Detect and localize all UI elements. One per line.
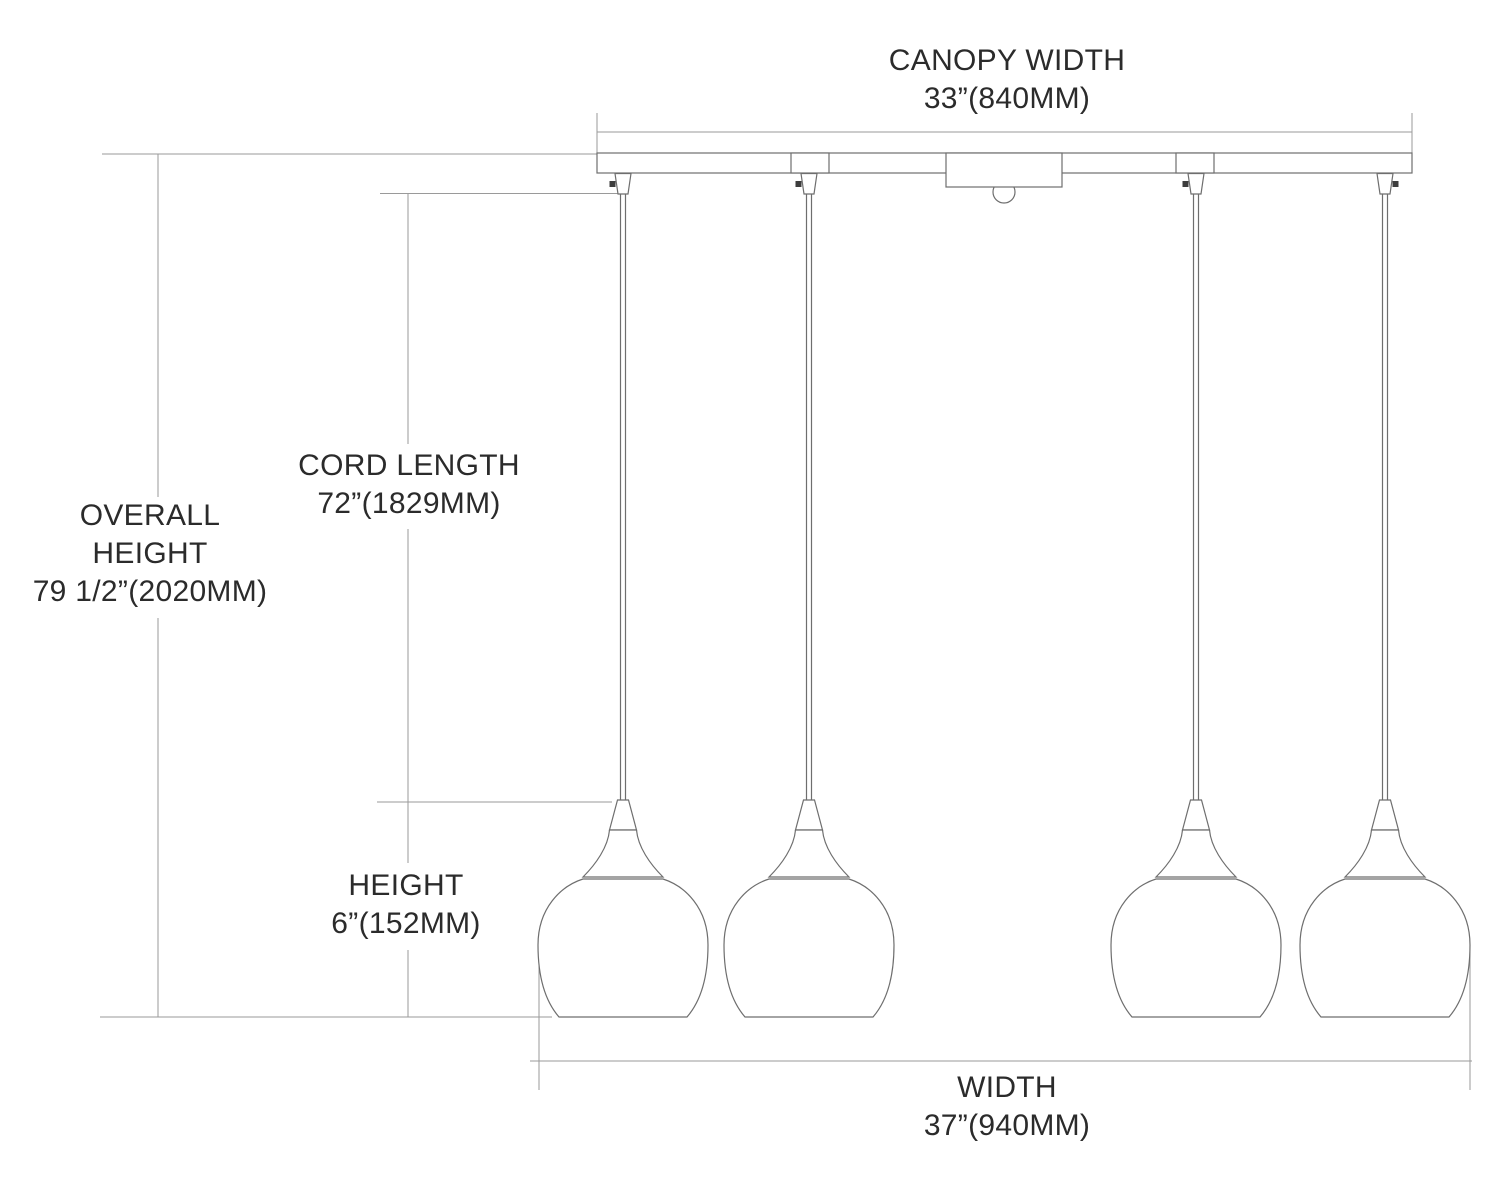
pendant-3 xyxy=(1111,174,1281,1018)
overall-height-value: 79 1/2”(2020MM) xyxy=(33,573,268,611)
shade-height-title: HEIGHT xyxy=(331,867,480,905)
cord-length-label: CORD LENGTH 72”(1829MM) xyxy=(298,447,520,523)
overall-height-title-line1: OVERALL xyxy=(33,497,268,535)
overall-height-title-line2: HEIGHT xyxy=(33,535,268,573)
pendant-2 xyxy=(724,174,894,1018)
pendant-4 xyxy=(1300,174,1470,1018)
center-junction-box xyxy=(946,153,1062,187)
canopy-mount-plate-right xyxy=(1176,153,1214,173)
canopy-width-title: CANOPY WIDTH xyxy=(889,42,1125,80)
shade-height-value: 6”(152MM) xyxy=(331,905,480,943)
width-title: WIDTH xyxy=(924,1069,1090,1107)
cord-length-title: CORD LENGTH xyxy=(298,447,520,485)
shade-height-label: HEIGHT 6”(152MM) xyxy=(331,867,480,943)
overall-height-label: OVERALL HEIGHT 79 1/2”(2020MM) xyxy=(33,497,268,611)
width-label: WIDTH 37”(940MM) xyxy=(924,1069,1090,1145)
canopy-width-dimension xyxy=(597,113,1412,153)
cord-length-dimension xyxy=(377,194,620,864)
dimension-diagram: CANOPY WIDTH 33”(840MM) OVERALL HEIGHT 7… xyxy=(0,0,1500,1193)
width-value: 37”(940MM) xyxy=(924,1107,1090,1145)
cord-length-value: 72”(1829MM) xyxy=(298,485,520,523)
canopy xyxy=(597,153,1412,203)
canopy-width-value: 33”(840MM) xyxy=(889,80,1125,118)
canopy-width-label: CANOPY WIDTH 33”(840MM) xyxy=(889,42,1125,118)
pendant-1 xyxy=(538,174,708,1018)
canopy-mount-plate-left xyxy=(791,153,829,173)
